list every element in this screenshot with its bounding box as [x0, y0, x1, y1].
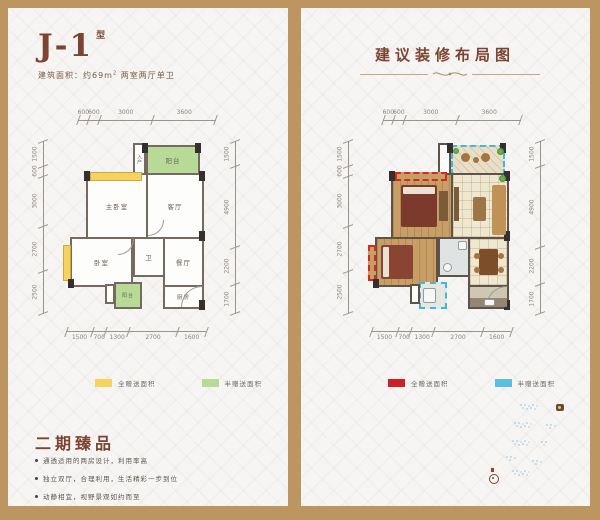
- dimension-line-bottom: 1500700130027001600: [371, 327, 511, 343]
- bed-pillows: [383, 247, 389, 277]
- selling-points: 通透适用的两房设计，利用率高 独立双厅，合理利用，生活精彩一步到位 动静相宜，视…: [35, 455, 178, 509]
- legend-swatch-green: [202, 379, 219, 387]
- bullet-text: 动静相宜，视野景观如约而至: [43, 491, 141, 501]
- room-label: 阳台: [166, 155, 181, 165]
- unit-area-subtitle: 建筑面积：约69m2 两室两厅单卫: [38, 70, 175, 81]
- logo-mark: [556, 404, 564, 411]
- unit-title-text: J-1: [38, 28, 93, 64]
- floorplan-decorated: 60060030003600 1500600300027002500 15004…: [335, 95, 585, 375]
- watermark: [506, 456, 508, 458]
- area-label: 建筑面积：约69m: [38, 71, 113, 80]
- room-label: 卧室: [94, 257, 109, 267]
- area-rest: 两室两厅单卫: [117, 71, 175, 80]
- plant: [499, 175, 506, 182]
- wall-block: [142, 143, 148, 153]
- legend-decorated: 全赠送面积 半赠送面积: [388, 378, 595, 388]
- room-label: 餐厅: [176, 257, 191, 267]
- room-bath: 卫: [133, 237, 165, 277]
- legend-label: 全赠送面积: [118, 378, 156, 388]
- plant: [453, 148, 459, 154]
- balcony-table: [473, 157, 479, 163]
- room-label: 入户: [136, 154, 143, 164]
- wall-block: [199, 231, 205, 241]
- unit-title: J-1型: [38, 28, 105, 64]
- divider-line: [472, 74, 540, 75]
- dimension-line-top: 60060030003600: [383, 111, 521, 127]
- bullet-text: 通透适用的两房设计，利用率高: [43, 455, 148, 465]
- center-divider: [288, 0, 301, 520]
- room-dining: 餐厅: [163, 237, 204, 287]
- balcony-chair: [461, 153, 470, 162]
- dimension-line-left: 1500600300027002500: [34, 141, 50, 313]
- bay-window-master: [90, 172, 142, 181]
- sink: [458, 241, 467, 250]
- plant: [497, 148, 504, 155]
- legend-swatch-red: [388, 379, 405, 387]
- bullet-dot: [35, 477, 38, 480]
- section-title: 二期臻品: [35, 430, 115, 454]
- legend-label: 半赠送面积: [225, 378, 263, 388]
- dining-chair: [474, 253, 480, 259]
- legend-swatch-blue: [495, 379, 512, 387]
- wall-block: [84, 171, 90, 181]
- dimension-line-top: 60060030003600: [78, 111, 216, 127]
- watermark: [541, 441, 543, 443]
- watermark: [532, 460, 534, 462]
- dining-chair: [474, 267, 480, 273]
- dining-table: [479, 249, 498, 275]
- room-balcony-top: 阳台: [146, 145, 200, 175]
- divider-line: [360, 74, 428, 75]
- room-balcony-bottom: 阳台: [114, 282, 142, 309]
- legend-label: 半赠送面积: [518, 378, 556, 388]
- tv-cabinet: [454, 187, 459, 221]
- wall-block: [68, 279, 74, 288]
- bullet-item: 动静相宜，视野景观如约而至: [35, 491, 178, 501]
- room-label: 卫: [145, 252, 153, 262]
- room-label: 客厅: [168, 201, 183, 211]
- title-divider: [360, 70, 540, 78]
- toilet: [443, 263, 452, 272]
- flourish-ornament: [432, 70, 468, 78]
- dimension-line-right: 1500490022001700: [226, 141, 242, 313]
- dining-chair: [498, 267, 504, 273]
- floorplan-schematic: 60060030003600 1500600300027002500 15004…: [30, 95, 280, 375]
- bed-pillows: [403, 187, 435, 194]
- bullet-item: 独立双厅，合理利用，生活精彩一步到位: [35, 473, 178, 483]
- room-master-bedroom: 主卧室: [86, 173, 148, 239]
- utility-box: [105, 284, 115, 304]
- dimension-line-bottom: 1500700130027001600: [66, 327, 206, 343]
- room-label: 阳台: [122, 292, 134, 299]
- bay-window-bedroom-gift: [368, 245, 376, 281]
- washing-machine: [423, 288, 436, 303]
- dimension-line-right: 1500490022001700: [531, 141, 547, 313]
- dimension-line-left: 1500600300027002500: [339, 141, 355, 313]
- wall-block: [389, 171, 395, 181]
- wall-block: [199, 300, 205, 310]
- utility-box: [410, 284, 420, 304]
- poster: J-1型 建筑面积：约69m2 两室两厅单卫 60060030003600 15…: [0, 0, 600, 520]
- bay-window-master-gift: [395, 172, 447, 181]
- wall-block: [195, 143, 201, 153]
- watermark: [546, 424, 548, 426]
- wall-block: [373, 279, 379, 288]
- bullet-dot: [35, 459, 38, 462]
- coffee-table: [473, 197, 486, 221]
- sofa: [492, 185, 506, 235]
- bullet-text: 独立双厅，合理利用，生活精彩一步到位: [43, 473, 178, 483]
- bullet-item: 通透适用的两房设计，利用率高: [35, 455, 178, 465]
- wardrobe: [439, 191, 448, 221]
- watermark: [512, 470, 514, 472]
- dining-chair: [498, 253, 504, 259]
- unit-type-tag: 型: [96, 31, 105, 41]
- watermark: [512, 440, 514, 442]
- legend-schematic: 全赠送面积 半赠送面积: [95, 378, 302, 388]
- balcony-chair: [481, 153, 490, 162]
- compass-needle: [491, 468, 494, 472]
- kitchen-sink: [484, 299, 495, 306]
- decor-plan-title: 建议装修布局图: [302, 44, 588, 65]
- compass-icon: [489, 474, 499, 484]
- wall-block: [199, 171, 205, 181]
- legend-label: 全赠送面积: [411, 378, 449, 388]
- bullet-dot: [35, 495, 38, 498]
- watermark: [520, 404, 522, 406]
- room-label: 主卧室: [106, 201, 129, 211]
- bay-window-bedroom: [63, 245, 71, 281]
- legend-swatch-yellow: [95, 379, 112, 387]
- watermark: [514, 422, 516, 424]
